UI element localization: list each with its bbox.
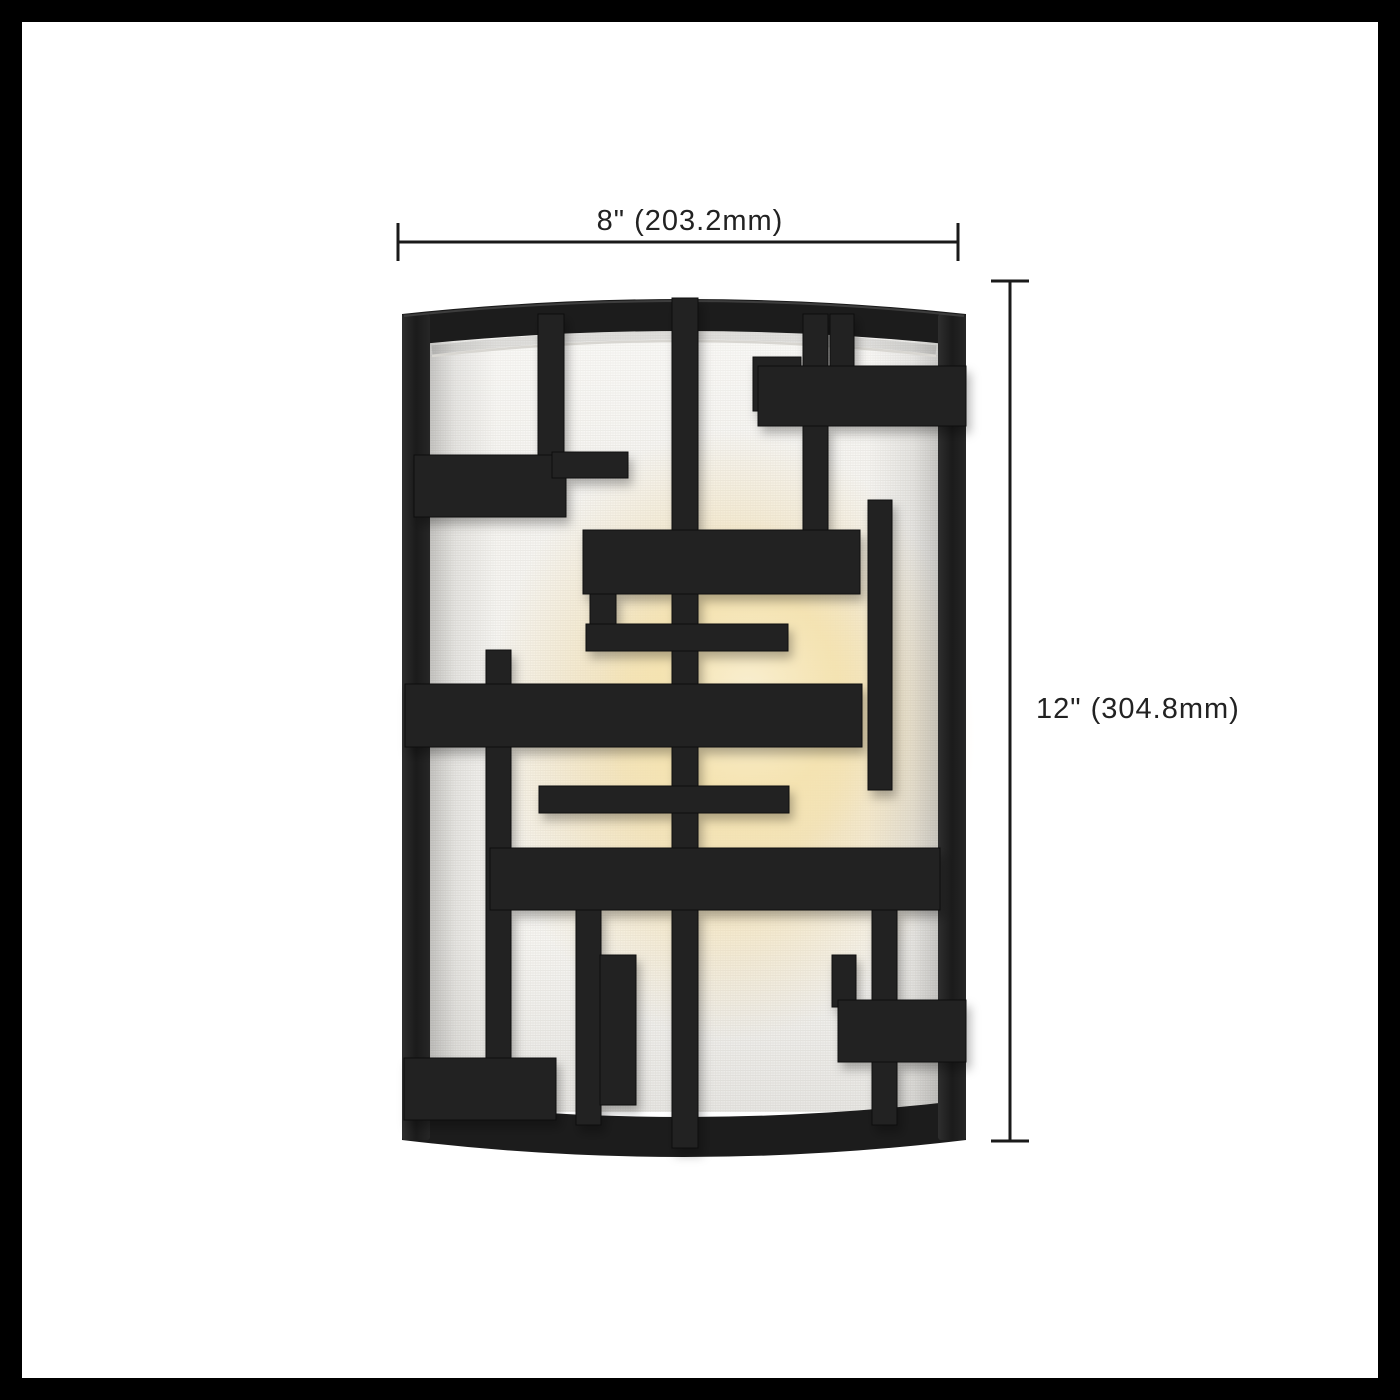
- grille-band-horizontal: [583, 530, 860, 594]
- width-dimension: 8" (203.2mm): [398, 205, 958, 261]
- grille-bar-vertical: [576, 880, 601, 1125]
- height-dimension: 12" (304.8mm): [991, 281, 1240, 1141]
- grille-band-horizontal: [414, 455, 566, 517]
- product-dimension-image: 8" (203.2mm) 12" (304.8mm): [0, 0, 1400, 1400]
- grille-bar-vertical: [538, 314, 564, 459]
- grille-bar-horizontal: [552, 452, 628, 478]
- grille-bar-vertical: [803, 314, 828, 544]
- grille-bar-vertical: [868, 500, 892, 790]
- height-dimension-label: 12" (304.8mm): [1036, 693, 1240, 725]
- grille-band-horizontal: [758, 366, 966, 426]
- width-dimension-label: 8" (203.2mm): [597, 205, 784, 237]
- wall-sconce: [402, 298, 975, 1157]
- grille-bar-horizontal: [539, 786, 789, 813]
- grille-bar-block: [600, 955, 636, 1105]
- sconce-diagram: 8" (203.2mm) 12" (304.8mm): [0, 0, 1400, 1400]
- grille-band-horizontal: [490, 848, 940, 910]
- grille-bar-horizontal: [586, 624, 788, 651]
- grille-band-horizontal: [405, 684, 862, 747]
- grille-bar-vertical-stub: [832, 955, 856, 1007]
- grille-band-horizontal: [838, 1000, 966, 1062]
- grille-band-horizontal: [404, 1058, 556, 1120]
- grille-bar-vertical-stub: [830, 314, 854, 374]
